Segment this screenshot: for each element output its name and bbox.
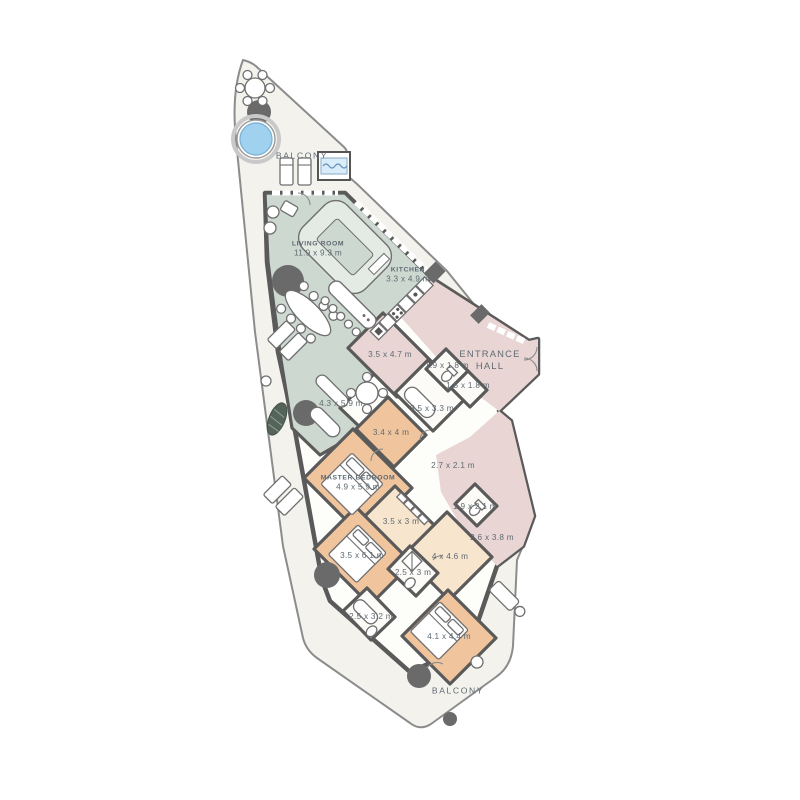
hot-tub-icon — [233, 116, 279, 162]
water-feature-icon — [318, 152, 350, 180]
column — [314, 562, 340, 588]
floorplan-page: BALCONYLIVING ROOM11.9 x 9.3 mKITCHEN3.3… — [0, 0, 800, 800]
balcony-post — [261, 376, 271, 386]
balcony-post — [471, 656, 483, 668]
column — [443, 712, 457, 726]
floorplan-drawing — [0, 0, 800, 800]
